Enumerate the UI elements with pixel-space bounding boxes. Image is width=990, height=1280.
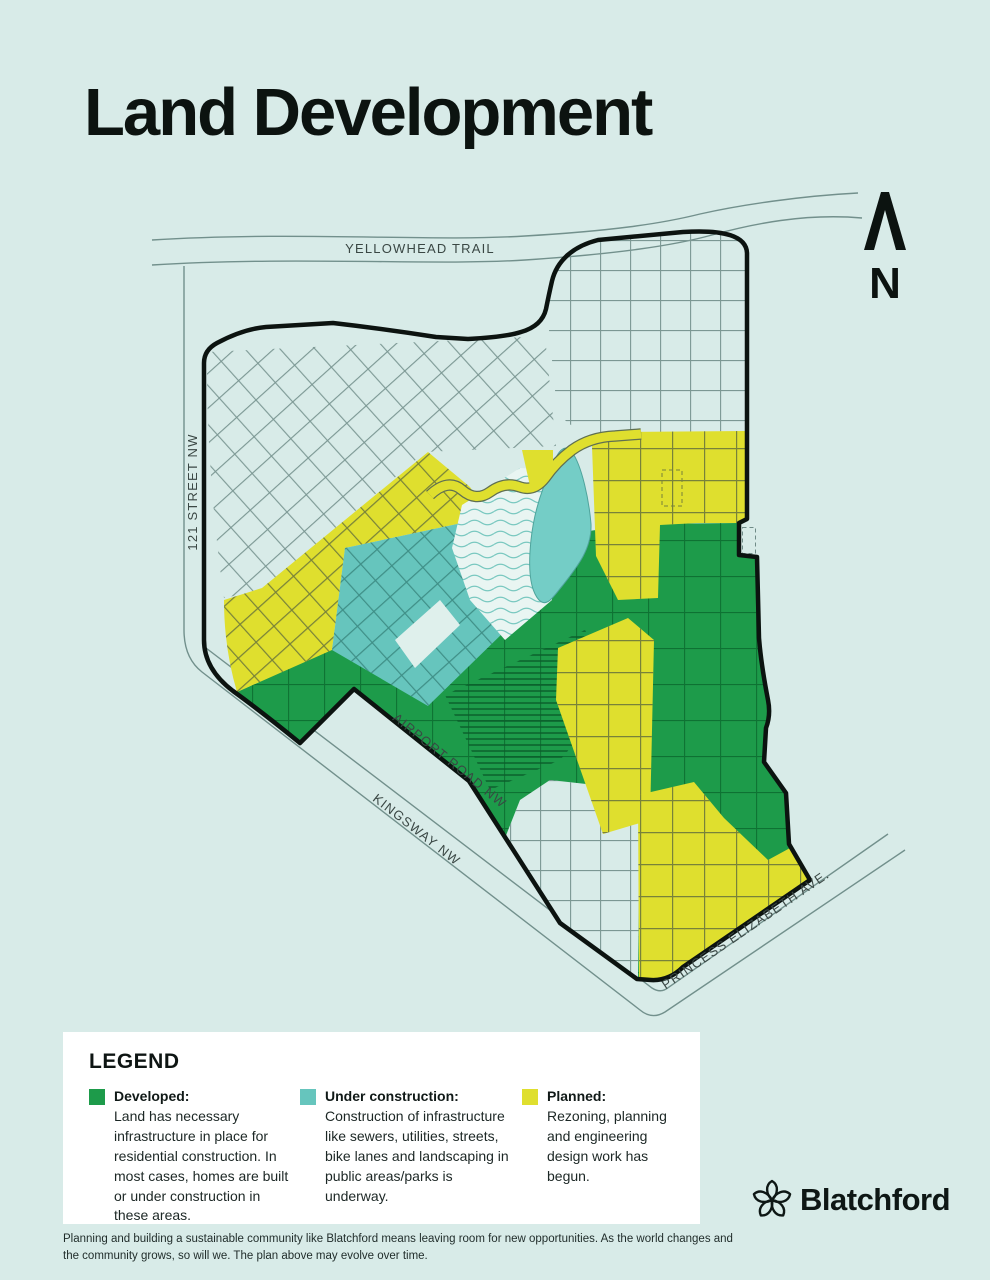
brand-name: Blatchford	[800, 1182, 950, 1218]
legend-desc-under-construction: Construction of infrastructure like sewe…	[325, 1107, 512, 1206]
label-yellowhead-trail: YELLOWHEAD TRAIL	[345, 241, 495, 256]
legend-items: Developed: Land has necessary infrastruc…	[89, 1088, 674, 1226]
planned-swatch	[522, 1089, 538, 1105]
north-label: N	[860, 262, 910, 306]
legend-item-under-construction: Under construction: Construction of infr…	[300, 1088, 512, 1226]
legend-desc-developed: Land has necessary infrastructure in pla…	[114, 1107, 290, 1226]
legend-item-developed: Developed: Land has necessary infrastruc…	[89, 1088, 290, 1226]
north-indicator: N	[860, 192, 910, 306]
road-yellowhead-lower	[152, 217, 862, 265]
legend-box: LEGEND Developed: Land has necessary inf…	[63, 1032, 700, 1224]
legend-desc-planned: Rezoning, planning and engineering desig…	[547, 1107, 674, 1187]
legend-label-developed: Developed:	[114, 1088, 290, 1104]
label-121-street: 121 STREET NW	[185, 433, 200, 550]
flower-icon	[750, 1178, 794, 1222]
road-yellowhead-upper	[152, 193, 858, 240]
brand-logo: Blatchford	[750, 1178, 950, 1222]
north-arrow-icon	[864, 192, 906, 250]
footer-disclaimer: Planning and building a sustainable comm…	[63, 1231, 743, 1266]
dashed-parcel-notch	[743, 528, 756, 554]
grid-future-northeast	[548, 232, 746, 433]
label-kingsway: KINGSWAY NW	[370, 791, 463, 869]
legend-label-planned: Planned:	[547, 1088, 674, 1104]
legend-label-under-construction: Under construction:	[325, 1088, 512, 1104]
under-construction-swatch	[300, 1089, 316, 1105]
legend-item-planned: Planned: Rezoning, planning and engineer…	[522, 1088, 674, 1226]
poster: Land Development	[0, 0, 990, 1280]
legend-title: LEGEND	[89, 1050, 674, 1074]
developed-swatch	[89, 1089, 105, 1105]
